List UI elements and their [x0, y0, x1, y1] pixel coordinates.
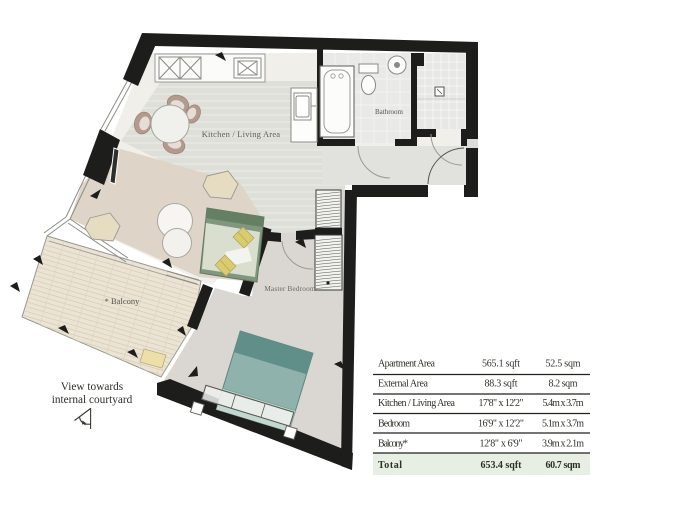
svg-text:internal courtyard: internal courtyard — [52, 394, 133, 406]
svg-text:5.1m x 3.7m: 5.1m x 3.7m — [542, 419, 584, 430]
svg-text:3.9m x 2.1m: 3.9m x 2.1m — [542, 439, 584, 450]
svg-text:View towards: View towards — [61, 381, 123, 393]
svg-text:Total: Total — [378, 460, 402, 471]
svg-text:Bathroom: Bathroom — [375, 108, 404, 116]
svg-text:5.4m x 3.7m: 5.4m x 3.7m — [543, 398, 584, 409]
svg-text:Apartment Area: Apartment Area — [378, 359, 436, 370]
svg-text:Kitchen / Living Area: Kitchen / Living Area — [378, 398, 456, 409]
svg-text:653.4 sqft: 653.4 sqft — [481, 460, 523, 471]
svg-text:8.2 sqm: 8.2 sqm — [549, 378, 578, 389]
svg-text:565.1 sqft: 565.1 sqft — [482, 359, 520, 370]
svg-text:External Area: External Area — [378, 378, 429, 389]
svg-text:17'8" x 12'2": 17'8" x 12'2" — [479, 398, 524, 409]
svg-text:16'9" x 12'2": 16'9" x 12'2" — [478, 419, 524, 430]
svg-text:Master Bedroom: Master Bedroom — [264, 285, 316, 293]
svg-text:Kitchen / Living Area: Kitchen / Living Area — [202, 129, 281, 139]
svg-text:* Balcony: * Balcony — [105, 296, 140, 306]
svg-text:Bedroom: Bedroom — [378, 419, 410, 430]
svg-text:12'8" x 6'9": 12'8" x 6'9" — [480, 439, 523, 450]
svg-text:Balcony*: Balcony* — [378, 439, 408, 450]
svg-text:52.5 sqm: 52.5 sqm — [546, 359, 581, 370]
svg-text:60.7 sqm: 60.7 sqm — [546, 460, 582, 471]
svg-text:88.3 sqft: 88.3 sqft — [485, 378, 518, 389]
